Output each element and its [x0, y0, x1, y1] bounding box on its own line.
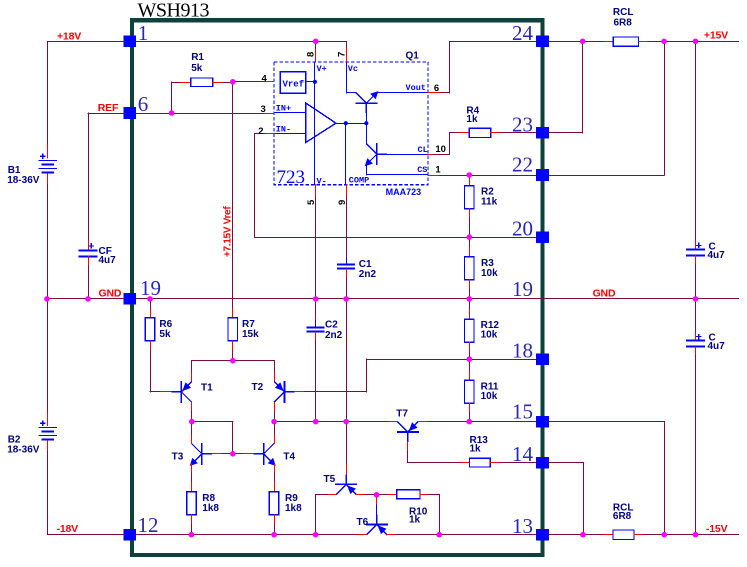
- svg-text:1: 1: [138, 21, 149, 45]
- svg-text:8: 8: [306, 52, 317, 57]
- svg-text:T1: T1: [201, 383, 213, 394]
- svg-text:T4: T4: [283, 452, 295, 463]
- svg-text:T5: T5: [324, 474, 336, 485]
- svg-text:V+: V+: [317, 64, 327, 74]
- svg-text:Vref: Vref: [283, 80, 305, 90]
- svg-text:18-36V: 18-36V: [7, 175, 40, 186]
- svg-text:12: 12: [138, 513, 159, 537]
- svg-text:WSH913: WSH913: [138, 0, 210, 22]
- svg-text:T6: T6: [357, 517, 369, 528]
- svg-text:18: 18: [512, 339, 533, 363]
- svg-text:Vc: Vc: [348, 64, 358, 74]
- svg-text:1k8: 1k8: [285, 503, 302, 514]
- svg-text:MAA723: MAA723: [386, 187, 422, 197]
- svg-text:13: 13: [512, 514, 533, 538]
- svg-text:IN-: IN-: [276, 125, 291, 135]
- svg-text:11k: 11k: [481, 197, 498, 208]
- svg-text:10k: 10k: [481, 330, 498, 341]
- svg-text:7: 7: [337, 52, 348, 57]
- svg-text:6: 6: [434, 83, 439, 94]
- svg-text:-15V: -15V: [706, 523, 728, 535]
- svg-text:10: 10: [435, 144, 446, 155]
- svg-text:RCL: RCL: [613, 7, 634, 18]
- svg-text:IN+: IN+: [276, 104, 291, 114]
- svg-text:V-: V-: [317, 176, 327, 186]
- svg-text:T7: T7: [396, 409, 408, 420]
- svg-text:24: 24: [512, 21, 534, 45]
- svg-text:10k: 10k: [481, 391, 498, 402]
- svg-text:19: 19: [140, 276, 161, 300]
- svg-text:T2: T2: [252, 382, 264, 393]
- svg-text:2: 2: [258, 126, 263, 137]
- svg-text:15k: 15k: [242, 329, 259, 340]
- svg-text:3: 3: [261, 104, 266, 115]
- svg-text:1k: 1k: [466, 114, 478, 125]
- svg-text:1k: 1k: [409, 515, 421, 526]
- svg-text:COMP: COMP: [349, 176, 369, 186]
- svg-text:Q1: Q1: [406, 51, 420, 62]
- svg-text:4u7: 4u7: [708, 341, 726, 352]
- svg-text:CL: CL: [418, 145, 428, 155]
- svg-text:5k: 5k: [191, 63, 203, 74]
- svg-text:4u7: 4u7: [99, 255, 117, 266]
- svg-text:1k: 1k: [470, 444, 482, 455]
- svg-text:723: 723: [277, 167, 306, 188]
- svg-text:GND: GND: [99, 288, 122, 300]
- svg-text:T3: T3: [172, 452, 184, 463]
- svg-text:15: 15: [512, 400, 533, 424]
- svg-text:CS: CS: [417, 165, 427, 175]
- svg-text:+7.15V Vref: +7.15V Vref: [223, 206, 234, 257]
- svg-text:2n2: 2n2: [325, 330, 343, 341]
- svg-text:6R8: 6R8: [613, 511, 632, 522]
- svg-text:4: 4: [262, 74, 268, 85]
- svg-text:REF: REF: [98, 102, 119, 114]
- svg-text:10k: 10k: [481, 268, 498, 279]
- svg-text:+15V: +15V: [704, 29, 728, 41]
- svg-text:+18V: +18V: [57, 31, 81, 43]
- svg-text:22: 22: [512, 153, 533, 177]
- svg-text:5k: 5k: [159, 329, 171, 340]
- svg-text:23: 23: [512, 113, 533, 137]
- svg-text:14: 14: [512, 442, 534, 466]
- svg-text:19: 19: [512, 277, 533, 301]
- svg-text:2n2: 2n2: [359, 269, 377, 280]
- svg-text:1: 1: [435, 165, 441, 176]
- svg-text:18-36V: 18-36V: [7, 445, 40, 456]
- svg-text:20: 20: [512, 217, 533, 241]
- svg-text:4u7: 4u7: [708, 250, 726, 261]
- svg-text:Vout: Vout: [406, 83, 426, 93]
- svg-text:1k8: 1k8: [202, 503, 219, 514]
- svg-text:6R8: 6R8: [614, 18, 633, 29]
- svg-text:-18V: -18V: [57, 523, 79, 535]
- svg-text:GND: GND: [593, 288, 616, 300]
- svg-text:R1: R1: [191, 52, 204, 63]
- svg-text:6: 6: [138, 92, 149, 116]
